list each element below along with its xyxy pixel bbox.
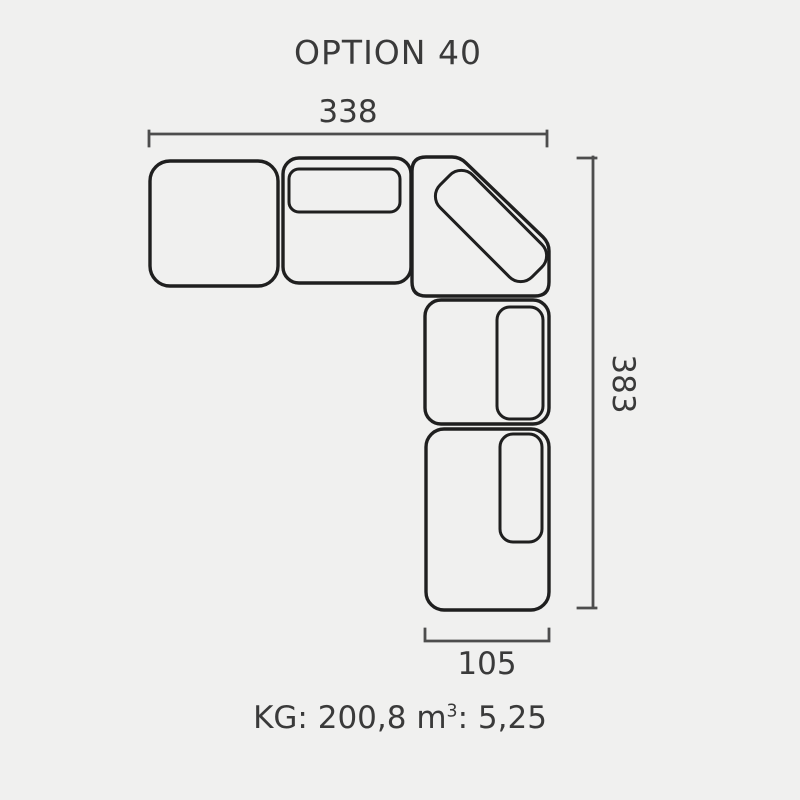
right-seat-backrest-cushion <box>497 307 543 419</box>
module-right-seat <box>425 300 549 424</box>
dimension-lines <box>149 131 596 641</box>
volume-value: 5,25 <box>478 700 547 736</box>
module-mid-seat <box>283 158 411 283</box>
dim-label-bottom-width: 105 <box>457 646 516 682</box>
dim-label-right-height: 383 <box>605 354 641 413</box>
dim-line-bottom <box>425 629 549 641</box>
mid-seat-backrest-cushion <box>289 169 400 212</box>
sofa-plan-diagram: 338 383 105 <box>0 0 800 800</box>
module-chaise-end-seat <box>426 429 549 610</box>
chaise-backrest-cushion <box>500 434 542 542</box>
kg-label: KG: <box>253 700 308 736</box>
module-left-end-seat <box>150 161 278 286</box>
volume-unit: m3: <box>416 700 468 736</box>
spec-sheet: OPTION 40 338 383 105 KG: 200,8 m3: <box>0 0 800 800</box>
sofa-modules <box>150 157 553 610</box>
dim-line-right <box>578 157 596 608</box>
module-corner-unit <box>412 157 549 296</box>
corner-diagonal-backrest-cushion <box>429 164 553 288</box>
volume-exponent: 3 <box>447 702 458 722</box>
dim-line-top <box>149 131 547 146</box>
kg-value: 200,8 <box>318 700 407 736</box>
dim-label-top-width: 338 <box>318 94 377 130</box>
weight-volume-line: KG: 200,8 m3: 5,25 <box>0 700 800 736</box>
